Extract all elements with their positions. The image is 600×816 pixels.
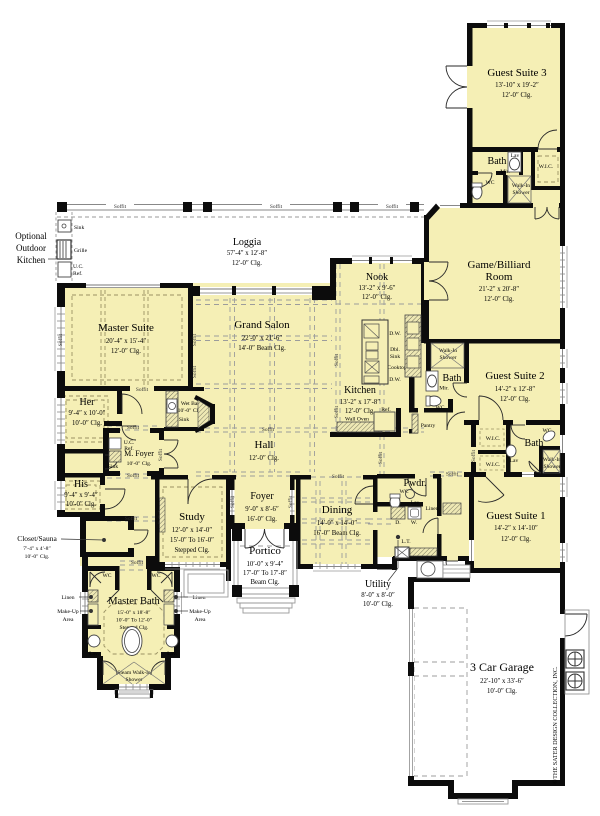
svg-text:12′-0″ Clg.: 12′-0″ Clg. — [345, 408, 375, 415]
svg-text:Soffit: Soffit — [332, 473, 345, 480]
svg-text:Soffit: Soffit — [470, 449, 477, 462]
svg-text:Optional: Optional — [15, 231, 47, 241]
svg-text:12′-0″ Clg.: 12′-0″ Clg. — [249, 455, 279, 462]
svg-text:Soffit: Soffit — [287, 495, 294, 508]
svg-text:12′-0″ x 14′-0″: 12′-0″ x 14′-0″ — [172, 527, 213, 534]
svg-text:Area: Area — [195, 617, 206, 623]
svg-text:W.I.C.: W.I.C. — [539, 164, 554, 170]
svg-text:Pantry: Pantry — [421, 423, 436, 429]
svg-text:Bath: Bath — [488, 156, 507, 167]
svg-text:WC: WC — [485, 180, 494, 186]
svg-text:14′-2″ x 14′-10″: 14′-2″ x 14′-10″ — [494, 525, 538, 532]
svg-text:Soffit: Soffit — [127, 472, 140, 479]
svg-text:10′-0″ Clg.: 10′-0″ Clg. — [72, 420, 102, 427]
svg-text:Closet/Sauna: Closet/Sauna — [17, 534, 57, 543]
svg-text:Soffit: Soffit — [446, 471, 459, 478]
svg-text:Hall: Hall — [255, 439, 274, 451]
svg-text:Linen: Linen — [192, 595, 205, 601]
svg-text:Her: Her — [80, 397, 96, 408]
svg-text:14′-0″ x 14′-0″: 14′-0″ x 14′-0″ — [317, 520, 358, 527]
svg-text:Ref.: Ref. — [124, 445, 134, 452]
svg-text:Soffit: Soffit — [270, 203, 283, 210]
svg-text:Lav.: Lav. — [167, 651, 177, 657]
svg-text:Master Bath: Master Bath — [108, 596, 160, 607]
svg-text:12′-0″ Clg.: 12′-0″ Clg. — [501, 536, 531, 543]
svg-text:Room: Room — [486, 271, 513, 283]
svg-text:Linen: Linen — [61, 595, 74, 601]
svg-text:17′-0″ To 17′-8″: 17′-0″ To 17′-8″ — [243, 570, 287, 577]
svg-text:Stepped Clg.: Stepped Clg. — [174, 547, 209, 554]
svg-text:Kitchen: Kitchen — [17, 255, 46, 265]
svg-text:WC: WC — [102, 573, 111, 579]
svg-text:Soffit: Soffit — [377, 451, 384, 464]
svg-text:7′-4″ x 4′-8″: 7′-4″ x 4′-8″ — [23, 546, 51, 552]
svg-text:16′-0″ Beam Clg.: 16′-0″ Beam Clg. — [313, 530, 361, 537]
svg-text:12′-0″ Clg.: 12′-0″ Clg. — [484, 296, 514, 303]
svg-text:Soffit: Soffit — [191, 333, 198, 346]
svg-text:10′-0″ Clg.: 10′-0″ Clg. — [127, 461, 152, 467]
svg-text:D.W.: D.W. — [389, 331, 401, 337]
svg-text:9′-4″ x 10′-0″: 9′-4″ x 10′-0″ — [69, 410, 106, 417]
svg-text:3 Car Garage: 3 Car Garage — [470, 660, 534, 674]
svg-text:Utility: Utility — [365, 579, 391, 590]
svg-text:Nook: Nook — [366, 272, 388, 283]
svg-text:Wet Bar: Wet Bar — [181, 401, 199, 407]
svg-text:10′-0″ Clg.: 10′-0″ Clg. — [487, 688, 517, 695]
svg-text:Bath: Bath — [525, 438, 544, 449]
svg-text:13′-10″ x 19′-2″: 13′-10″ x 19′-2″ — [495, 82, 539, 89]
svg-text:Sink: Sink — [390, 354, 400, 360]
svg-text:W.I.C.: W.I.C. — [486, 462, 501, 468]
svg-text:Soffit: Soffit — [333, 353, 340, 366]
svg-text:Lav.: Lav. — [89, 651, 99, 657]
svg-text:8′-0″ x 8′-0″: 8′-0″ x 8′-0″ — [361, 592, 395, 599]
svg-text:Portico: Portico — [249, 545, 281, 557]
svg-text:Steam Walk-In: Steam Walk-In — [117, 670, 151, 676]
svg-text:Game/Billiard: Game/Billiard — [468, 259, 531, 271]
svg-text:Master Suite: Master Suite — [98, 322, 154, 334]
svg-text:10′-0″ To 12′-0″: 10′-0″ To 12′-0″ — [116, 618, 153, 624]
svg-text:10′-0″ x 9′-4″: 10′-0″ x 9′-4″ — [247, 561, 284, 568]
svg-text:Mir.: Mir. — [439, 386, 449, 392]
svg-text:Foyer: Foyer — [250, 491, 274, 502]
svg-text:21′-2″ x 20′-8″: 21′-2″ x 20′-8″ — [479, 286, 520, 293]
svg-text:Grille: Grille — [74, 248, 88, 254]
svg-text:Soffit: Soffit — [125, 515, 138, 522]
svg-text:Outdoor: Outdoor — [16, 243, 46, 253]
svg-text:Lav: Lav — [411, 500, 420, 506]
svg-text:©THE SATER DESIGN COLLECTION,: ©THE SATER DESIGN COLLECTION, INC. — [552, 666, 559, 784]
svg-text:10′-0″ Clg.: 10′-0″ Clg. — [66, 501, 96, 508]
svg-text:Soffit: Soffit — [114, 203, 127, 210]
svg-text:Pwdr.: Pwdr. — [403, 478, 426, 489]
svg-text:Linen: Linen — [425, 506, 438, 512]
svg-text:L.T.: L.T. — [401, 539, 411, 545]
svg-text:14′-2″ x 12′-8″: 14′-2″ x 12′-8″ — [495, 386, 536, 393]
svg-text:Shower: Shower — [125, 677, 142, 683]
svg-text:Soffit: Soffit — [386, 203, 399, 210]
svg-text:14′-0″ Beam Clg.: 14′-0″ Beam Clg. — [238, 345, 286, 352]
svg-text:Soffit: Soffit — [131, 559, 144, 566]
svg-text:Soffit: Soffit — [127, 424, 140, 431]
svg-text:22′-0″ x 21′-6″: 22′-0″ x 21′-6″ — [242, 335, 283, 342]
svg-text:12′-0″ Clg.: 12′-0″ Clg. — [232, 260, 262, 267]
svg-text:Bath: Bath — [443, 373, 462, 384]
svg-text:Sink: Sink — [74, 225, 84, 231]
svg-text:13′-2″ x 9′-6″: 13′-2″ x 9′-6″ — [359, 285, 396, 292]
svg-text:Lav: Lav — [510, 458, 519, 464]
svg-text:His: His — [74, 479, 88, 490]
svg-text:10′-0″ Clg.: 10′-0″ Clg. — [363, 601, 393, 608]
svg-text:15′-0″ x 18′-8″: 15′-0″ x 18′-8″ — [117, 610, 151, 616]
svg-text:D.W.: D.W. — [389, 377, 401, 383]
svg-text:Area: Area — [63, 617, 74, 623]
svg-text:Grand Salon: Grand Salon — [234, 319, 290, 331]
svg-text:Cooktop: Cooktop — [387, 365, 406, 371]
svg-text:Loggia: Loggia — [233, 237, 262, 248]
svg-text:12′-0″ Clg.: 12′-0″ Clg. — [111, 348, 141, 355]
svg-text:Beam Clg.: Beam Clg. — [250, 579, 279, 586]
svg-text:Soffit: Soffit — [229, 495, 236, 508]
svg-text:Soffit: Soffit — [57, 333, 64, 346]
svg-text:Guest Suite 1: Guest Suite 1 — [486, 510, 545, 522]
svg-text:Soffit: Soffit — [262, 426, 275, 433]
svg-text:Guest Suite 3: Guest Suite 3 — [487, 67, 547, 79]
svg-text:Soffit: Soffit — [333, 405, 340, 418]
svg-text:12′-0″ Clg.: 12′-0″ Clg. — [502, 92, 532, 99]
svg-text:Study: Study — [179, 511, 205, 523]
svg-text:U.C.: U.C. — [73, 264, 84, 270]
svg-text:WC: WC — [151, 573, 160, 579]
svg-text:13′-2″ x 17′-8″: 13′-2″ x 17′-8″ — [340, 399, 381, 406]
svg-text:W.I.C.: W.I.C. — [486, 436, 501, 442]
svg-text:Dbl.: Dbl. — [390, 347, 400, 353]
svg-text:16′-0″ Clg.: 16′-0″ Clg. — [247, 516, 277, 523]
svg-text:Soffit: Soffit — [157, 448, 164, 461]
svg-text:20′-4″ x 15′-4″: 20′-4″ x 15′-4″ — [106, 338, 147, 345]
svg-text:Ref.: Ref. — [73, 270, 83, 277]
svg-text:10′-0″ Clg.: 10′-0″ Clg. — [25, 554, 50, 560]
svg-text:Guest Suite 2: Guest Suite 2 — [485, 370, 544, 382]
svg-text:Make-Up: Make-Up — [189, 609, 211, 615]
svg-text:12′-0″ Clg.: 12′-0″ Clg. — [362, 294, 392, 301]
svg-text:Sink: Sink — [179, 417, 189, 423]
svg-text:9′-4″ x 9′-4″: 9′-4″ x 9′-4″ — [64, 492, 98, 499]
svg-text:Soffit: Soffit — [136, 386, 149, 393]
svg-text:9′-0″ x 8′-6″: 9′-0″ x 8′-6″ — [245, 506, 279, 513]
svg-text:Kitchen: Kitchen — [344, 385, 376, 396]
svg-text:Sink: Sink — [108, 464, 118, 470]
svg-text:D.: D. — [395, 520, 401, 526]
svg-text:Soffit: Soffit — [191, 365, 198, 378]
svg-text:57′-4″ x 12′-8″: 57′-4″ x 12′-8″ — [227, 250, 268, 257]
svg-text:Dining: Dining — [322, 504, 353, 516]
svg-text:15′-0″ To 16′-0″: 15′-0″ To 16′-0″ — [170, 537, 214, 544]
svg-text:12′-0″ Clg.: 12′-0″ Clg. — [500, 396, 530, 403]
svg-text:W.: W. — [411, 520, 418, 526]
svg-text:22′-10″ x 33′-6″: 22′-10″ x 33′-6″ — [480, 678, 524, 685]
svg-text:Make-Up: Make-Up — [57, 609, 79, 615]
svg-text:Lav: Lav — [511, 153, 520, 159]
